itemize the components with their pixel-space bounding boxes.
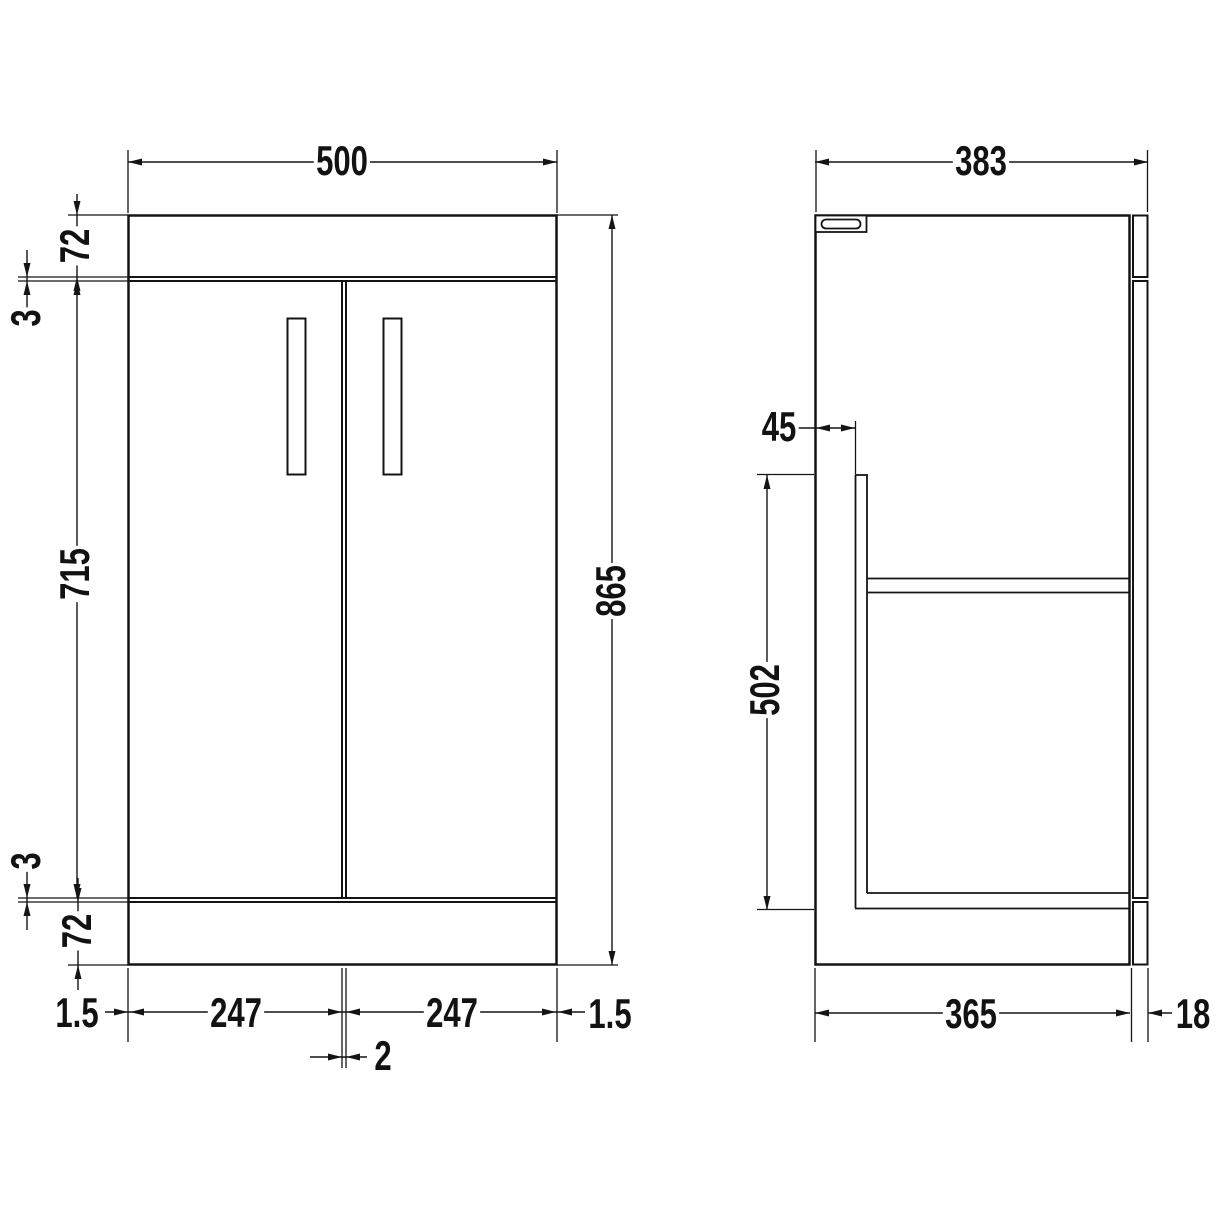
dim-label-carcass-depth: 365	[943, 993, 999, 1035]
dim-label-left-door: 247	[208, 992, 264, 1034]
dim-label-door-thickness: 18	[1173, 993, 1212, 1035]
side-view	[816, 216, 1148, 965]
dim-label-interior-height: 502	[744, 662, 786, 718]
front-right-door-handle	[384, 319, 402, 475]
dim-label-bottom-gap: 3	[5, 850, 47, 872]
side-carcass-outline	[816, 216, 1130, 965]
dim-label-overall-width: 500	[314, 140, 370, 182]
dim-label-top-gap: 3	[5, 307, 47, 329]
side-bracket-slot	[822, 220, 861, 229]
dim-label-left-offset: 1.5	[53, 992, 101, 1034]
dim-label-center-gap: 2	[372, 1035, 394, 1077]
dim-label-overall-depth: 383	[953, 140, 1009, 182]
front-view	[128, 216, 557, 965]
dim-label-top-panel: 72	[54, 226, 96, 265]
dim-label-front-recess: 45	[759, 406, 798, 448]
dim-label-plinth: 72	[56, 911, 98, 950]
front-left-door-handle	[288, 319, 306, 475]
dim-label-right-door: 247	[424, 992, 480, 1034]
technical-drawing-canvas: 500 72 3 715 3 72 865 1.5 247 2 247 1.5 …	[0, 0, 1224, 1224]
side-plinth-edge	[1133, 902, 1148, 965]
side-top-panel-edge	[1133, 216, 1148, 278]
dim-label-door-height: 715	[54, 546, 96, 602]
dim-label-overall-height: 865	[590, 563, 632, 619]
side-door-edge	[1133, 281, 1148, 898]
dim-label-right-offset: 1.5	[586, 993, 634, 1035]
